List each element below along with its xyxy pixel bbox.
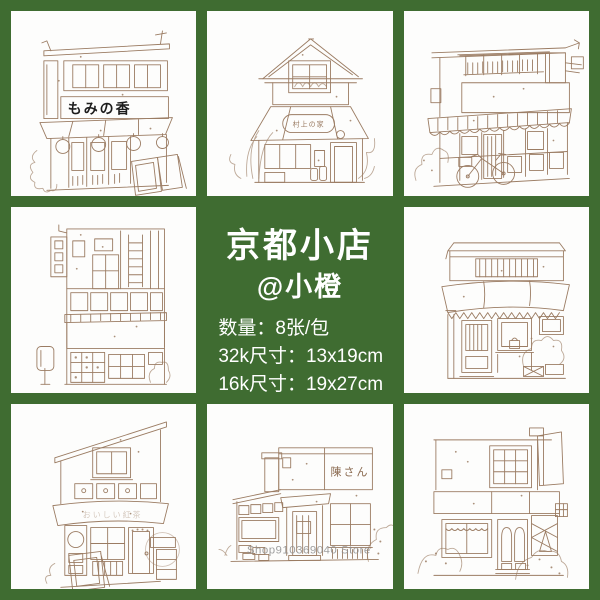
spec-size-16k: 16k尺寸：19x27cm	[218, 371, 392, 392]
shop-drawing-bottom-middle: 陳さん Shop910369040 Store	[207, 404, 392, 589]
shop-drawing-middle-right	[404, 207, 589, 392]
shop-drawing-top-middle: 村上の家	[207, 11, 392, 196]
product-title: 京都小店	[207, 227, 392, 265]
sketch-gabled-house: 村上の家	[207, 11, 392, 196]
watermark-store-text: Shop910369040 Store	[247, 544, 371, 556]
sketch-arched-door-shop	[404, 404, 589, 589]
shop-drawing-bottom-left: おいしい紅茶	[11, 404, 196, 589]
spec-size-32k: 32k尺寸：13x19cm	[218, 343, 392, 371]
spec-quantity: 数量：8张/包	[218, 315, 392, 343]
shop-drawing-middle-left	[11, 207, 196, 392]
sketch-awning-shop	[404, 207, 589, 392]
info-panel: 京都小店 @小橙 数量：8张/包 32k尺寸：13x19cm 16k尺寸：19x…	[207, 207, 392, 392]
awning-text: おいしい紅茶	[83, 509, 143, 519]
sketch-shed-roof-shop: おいしい紅茶	[11, 404, 196, 589]
sketch-tall-shop	[11, 207, 196, 392]
sketch-shop-bicycle	[404, 11, 589, 196]
product-collage: もみの香	[0, 0, 600, 600]
sketch-shop-momi: もみの香	[11, 11, 196, 196]
shop-drawing-bottom-right	[404, 404, 589, 589]
sign-text-chen: 陳さん	[331, 465, 370, 478]
sign-text-momi: もみの香	[68, 101, 132, 117]
author-handle: @小橙	[207, 271, 392, 303]
spec-list: 数量：8张/包 32k尺寸：13x19cm 16k尺寸：19x27cm	[207, 315, 392, 392]
sketch-chen-shop: 陳さん Shop910369040 Store	[207, 404, 392, 589]
sign-text-oval: 村上の家	[293, 120, 325, 129]
lamp-box	[150, 537, 175, 547]
shop-drawing-top-right	[404, 11, 589, 196]
shop-drawing-top-left: もみの香	[11, 11, 196, 196]
